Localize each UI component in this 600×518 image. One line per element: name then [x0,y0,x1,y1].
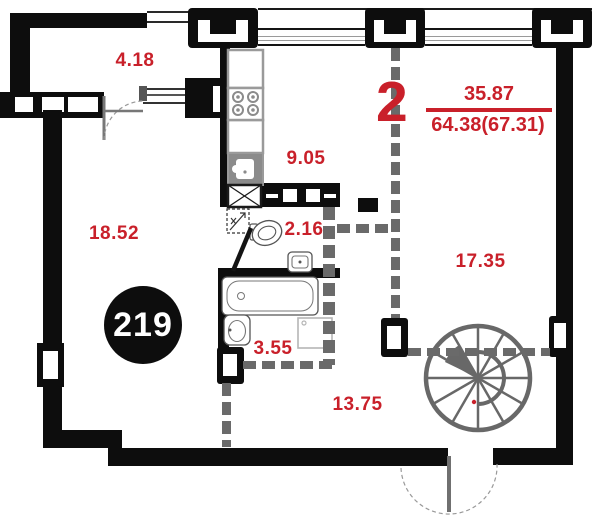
balcony-door [103,96,144,140]
stair-marker-dot [472,400,476,404]
wc-door-leaf [233,228,251,271]
area-label-wc: 2.16 [279,219,329,241]
floor-plan: 4.18 18.52 9.05 2.16 17.35 3.55 13.75 2 … [0,0,600,518]
area-label-living-room: 18.52 [76,223,152,245]
duct-box [227,209,249,233]
vent-shaft-box [228,185,261,207]
area-label-bedroom: 17.35 [448,251,513,273]
partition-hall-left [222,383,231,447]
overall-area-total: 64.38(67.31) [420,114,556,137]
entrance-door [401,456,497,514]
area-label-kitchen: 9.05 [277,148,335,170]
spiral-staircase [426,326,530,430]
partition-bedroom-bottom [408,348,550,356]
partition-bath-bottom [243,361,336,369]
unit-number-badge: 219 [104,286,182,364]
kitchen-sink [228,153,263,185]
room-count: 2 [376,74,408,131]
bathtub [222,277,318,315]
area-label-balcony: 4.18 [106,50,164,72]
wc-washbasin [288,252,312,272]
living-area-total: 35.87 [426,83,552,106]
fraction-divider [426,108,552,112]
stove [228,88,263,120]
partition-wc-bedroom [337,224,392,233]
area-label-hallway: 13.75 [325,394,390,416]
area-label-bathroom: 3.55 [247,338,299,360]
